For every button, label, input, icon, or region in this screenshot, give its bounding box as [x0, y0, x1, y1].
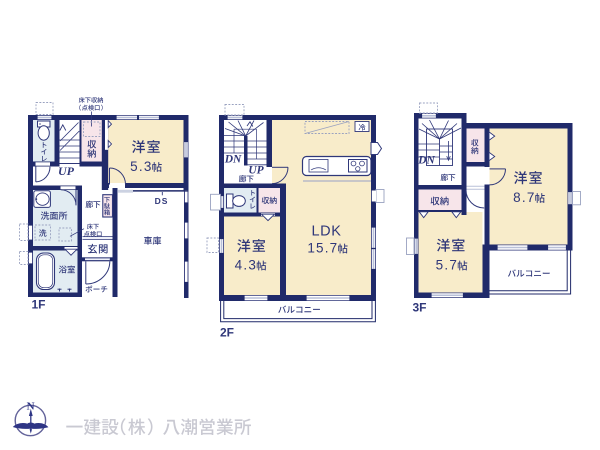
svg-text:5.7: 5.7	[436, 258, 458, 273]
svg-text:UP: UP	[58, 164, 75, 178]
svg-text:N: N	[27, 401, 35, 413]
svg-text:2F: 2F	[220, 326, 234, 340]
svg-text:DN: DN	[224, 154, 242, 166]
svg-text:UP: UP	[248, 165, 264, 177]
svg-text:8.7: 8.7	[513, 190, 535, 205]
svg-text:15.7: 15.7	[307, 241, 338, 256]
svg-text:LDK: LDK	[311, 224, 341, 240]
svg-text:DS: DS	[155, 196, 169, 206]
svg-text:4.3: 4.3	[235, 258, 257, 273]
svg-text:1F: 1F	[31, 298, 45, 312]
svg-text:3F: 3F	[412, 301, 426, 315]
svg-text:DN: DN	[417, 155, 435, 167]
svg-text:5.3: 5.3	[130, 159, 152, 174]
